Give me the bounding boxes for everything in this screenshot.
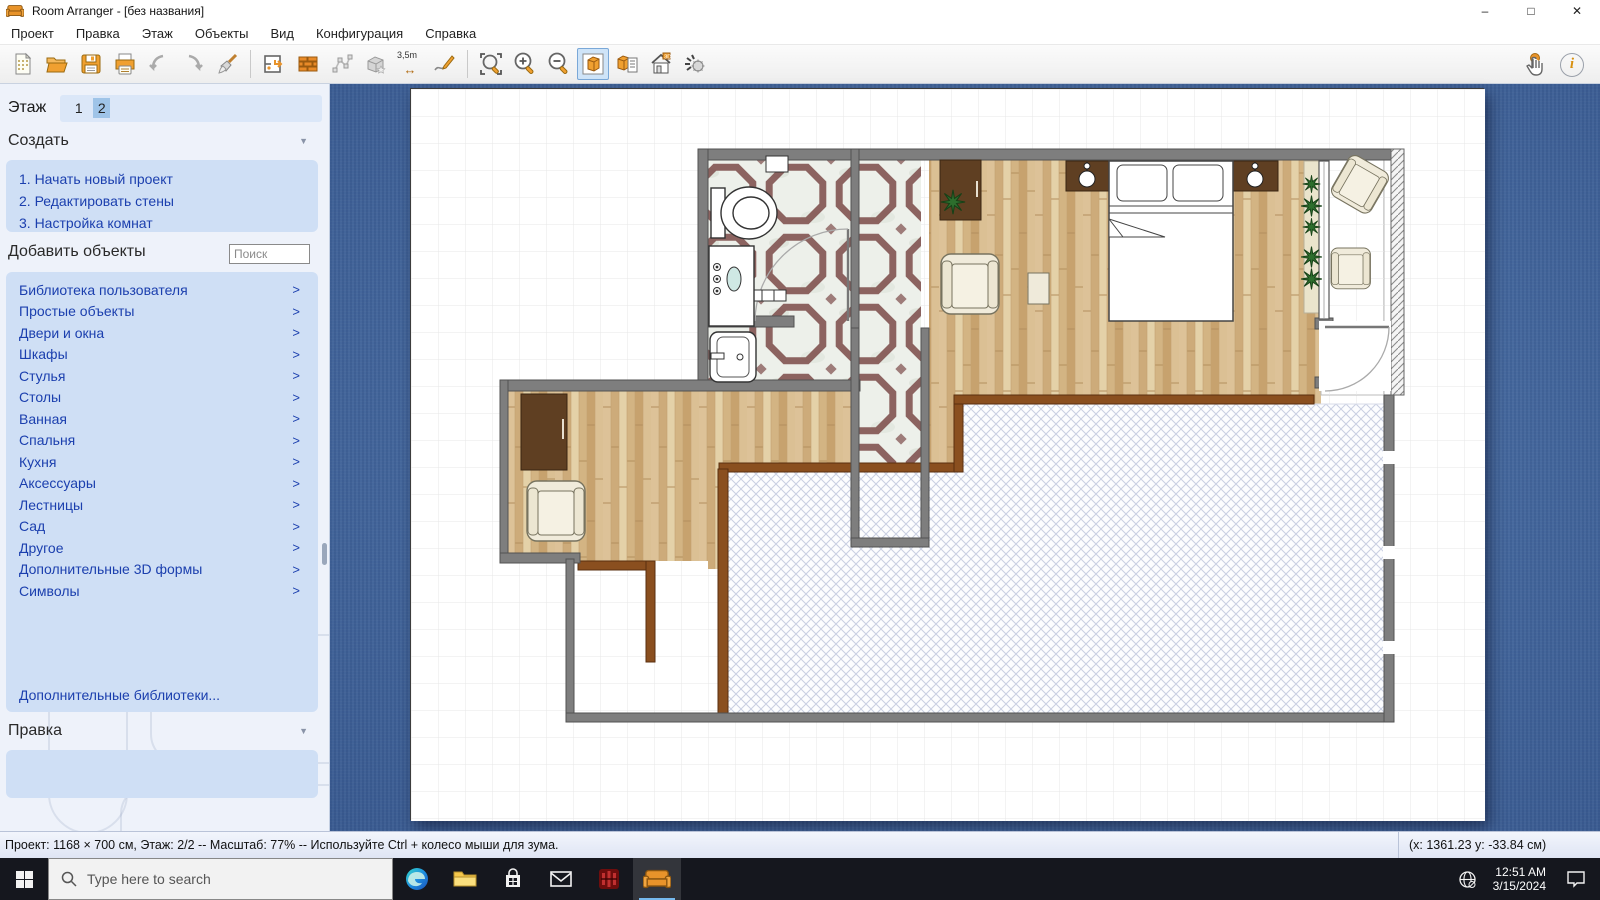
walkthrough-3d-button[interactable]: 3D [645, 48, 677, 80]
taskbar-mail[interactable] [537, 858, 585, 900]
toolbar-separator [250, 50, 251, 78]
cabinet-with-plant[interactable] [940, 160, 981, 220]
clock-date: 3/15/2024 [1493, 879, 1546, 893]
collapse-icon[interactable]: ▼ [299, 726, 308, 736]
print-button[interactable] [109, 48, 141, 80]
drawing-canvas[interactable] [330, 84, 1600, 831]
render-button[interactable] [679, 48, 711, 80]
chevron-right-icon: > [292, 390, 300, 405]
create-panel: 1. Начать новый проект 2. Редактировать … [6, 160, 318, 232]
zoom-in-button[interactable] [509, 48, 541, 80]
white-room-door[interactable] [1319, 321, 1391, 391]
start-button[interactable] [0, 858, 48, 900]
category-stairs[interactable]: Лестницы> [6, 494, 318, 516]
info-icon: i [1560, 53, 1584, 77]
category-3d-shapes[interactable]: Дополнительные 3D формы> [6, 559, 318, 581]
house-3d-icon: 3D [648, 51, 674, 77]
link-room-setup[interactable]: 3. Настройка комнат [6, 212, 318, 234]
edge-browser-icon [404, 866, 430, 892]
menu-help[interactable]: Справка [414, 22, 487, 45]
zoom-region-icon [478, 51, 504, 77]
chevron-right-icon: > [292, 411, 300, 426]
view-3d-objects-button[interactable] [611, 48, 643, 80]
sink[interactable] [710, 332, 756, 382]
redo-arrow-icon [181, 52, 205, 76]
network-globe-icon[interactable] [1458, 870, 1477, 889]
about-button[interactable]: i [1555, 48, 1589, 82]
chevron-right-icon: > [292, 433, 300, 448]
menu-project[interactable]: Проект [0, 22, 65, 45]
floor-tabs: 1 2 [60, 95, 322, 122]
group-objects-button[interactable] [360, 48, 392, 80]
chevron-right-icon: > [292, 454, 300, 469]
chevron-right-icon: > [292, 562, 300, 577]
mail-icon [548, 866, 574, 892]
category-simple-objects[interactable]: Простые объекты> [6, 301, 318, 323]
add-objects-header: Добавить объекты [0, 243, 322, 267]
cube-list-icon [615, 52, 639, 76]
cube-3d-icon [581, 52, 605, 76]
menu-objects[interactable]: Объекты [184, 22, 260, 45]
edit-header-label: Правка [8, 722, 62, 739]
create-header-label: Создать [8, 132, 69, 149]
edit-vertices-button[interactable] [326, 48, 358, 80]
wall-properties-button[interactable] [292, 48, 324, 80]
statusbar: Проект: 1168 × 700 см, Этаж: 2/2 -- Масш… [0, 831, 1600, 858]
redo-button[interactable] [177, 48, 209, 80]
measure-label: 3,5m [397, 51, 417, 60]
category-kitchen[interactable]: Кухня> [6, 451, 318, 473]
taskbar-search[interactable] [48, 858, 393, 900]
category-doors-windows[interactable]: Двери и окна> [6, 322, 318, 344]
plan-page[interactable] [410, 88, 1484, 820]
action-center-icon[interactable] [1566, 870, 1586, 888]
window-wall-hatched[interactable] [1391, 149, 1404, 395]
taskbar-edge[interactable] [393, 858, 441, 900]
menu-configuration[interactable]: Конфигурация [305, 22, 414, 45]
corridor-armchair[interactable] [527, 481, 585, 541]
format-brush-button[interactable] [211, 48, 243, 80]
menu-floor[interactable]: Этаж [131, 22, 184, 45]
printer-icon [113, 52, 137, 76]
chevron-right-icon: > [292, 519, 300, 534]
view-3d-button[interactable] [577, 48, 609, 80]
category-bedroom[interactable]: Спальня> [6, 430, 318, 452]
menubar: Проект Правка Этаж Объекты Вид Конфигура… [0, 22, 1600, 45]
object-search-input[interactable] [229, 244, 310, 264]
main-area: Этаж 1 2 Создать ▼ 1. Начать новый проек… [0, 84, 1600, 831]
window-controls: – □ ✕ [1462, 0, 1600, 22]
microsoft-store-icon [501, 867, 525, 891]
pen-icon [432, 52, 456, 76]
undo-arrow-icon [147, 52, 171, 76]
measure-arrow-icon: ↔ [395, 64, 425, 76]
titlebar: Room Arranger - [без названия] – □ ✕ [0, 0, 1600, 22]
search-icon [61, 871, 77, 887]
zoom-out-button[interactable] [543, 48, 575, 80]
menu-edit[interactable]: Правка [65, 22, 131, 45]
chevron-right-icon: > [292, 282, 300, 297]
edit-section-header: Правка ▼ [0, 722, 322, 746]
toolbar-separator [467, 50, 468, 78]
undo-button[interactable] [143, 48, 175, 80]
sidebar: Этаж 1 2 Создать ▼ 1. Начать новый проек… [0, 84, 330, 831]
new-project-button[interactable] [7, 48, 39, 80]
hand-touch-icon [1523, 52, 1549, 78]
zoom-selection-button[interactable] [475, 48, 507, 80]
draw-button[interactable] [428, 48, 460, 80]
object-categories-panel: Библиотека пользователя> Простые объекты… [6, 272, 318, 712]
category-symbols[interactable]: Символы> [6, 580, 318, 602]
category-garden[interactable]: Сад> [6, 516, 318, 538]
windows-taskbar: 12:51 AM 3/15/2024 [0, 858, 1600, 900]
save-floppy-icon [79, 52, 103, 76]
menu-view[interactable]: Вид [259, 22, 305, 45]
category-user-library[interactable]: Библиотека пользователя> [6, 279, 318, 301]
open-folder-icon [45, 52, 69, 76]
chevron-right-icon: > [292, 497, 300, 512]
taskbar-clock[interactable]: 12:51 AM 3/15/2024 [1493, 865, 1546, 893]
save-button[interactable] [75, 48, 107, 80]
taskbar-room-arranger[interactable] [633, 858, 681, 900]
floor-tab-1[interactable]: 1 [70, 98, 87, 118]
category-tables[interactable]: Столы> [6, 387, 318, 409]
status-project-info: Проект: 1168 × 700 см, Этаж: 2/2 -- Масш… [5, 838, 559, 852]
chevron-right-icon: > [292, 325, 300, 340]
chevron-right-icon: > [292, 304, 300, 319]
vertex-edit-icon [330, 52, 354, 76]
sidebar-scrollbar-thumb[interactable] [322, 543, 327, 565]
group-box-icon [364, 52, 388, 76]
zoom-out-icon [546, 51, 572, 77]
windows-logo-icon [16, 871, 33, 888]
taskbar-store[interactable] [489, 858, 537, 900]
double-bed[interactable] [1109, 161, 1233, 321]
close-button[interactable]: ✕ [1554, 0, 1600, 22]
add-objects-label: Добавить объекты [8, 243, 146, 260]
category-other[interactable]: Другое> [6, 537, 318, 559]
toolbar-right: i [1518, 45, 1590, 84]
toolbar: 3,5m ↔ 3D [0, 45, 1600, 84]
armchair-small[interactable] [1331, 248, 1370, 289]
maximize-button[interactable]: □ [1508, 0, 1554, 22]
open-project-button[interactable] [41, 48, 73, 80]
nightstand-left[interactable] [1066, 161, 1109, 191]
chevron-right-icon: > [292, 583, 300, 598]
chevron-right-icon: > [292, 476, 300, 491]
system-tray: 12:51 AM 3/15/2024 [1452, 858, 1600, 900]
floor-selector: Этаж 1 2 [0, 94, 322, 122]
chevron-right-icon: > [292, 347, 300, 362]
create-section-header: Создать ▼ [0, 132, 322, 156]
status-cursor-coordinates: (x: 1361.23 y: -33.84 см) [1398, 832, 1594, 858]
taskbar-media-app[interactable] [585, 858, 633, 900]
chevron-right-icon: > [292, 368, 300, 383]
brush-icon [215, 52, 239, 76]
zoom-in-icon [512, 51, 538, 77]
edit-panel [6, 750, 318, 798]
side-table[interactable] [1028, 273, 1049, 304]
more-libraries-link[interactable]: Дополнительные библиотеки... [19, 687, 220, 703]
floorplan-icon [262, 52, 286, 76]
floor-plan[interactable] [411, 89, 1485, 821]
window[interactable] [1319, 161, 1329, 319]
brick-wall-icon [296, 52, 320, 76]
room-arranger-sofa-icon [643, 868, 671, 890]
room-arranger-window: Room Arranger - [без названия] – □ ✕ Про… [0, 0, 1600, 900]
armchair-bedroom[interactable] [941, 254, 999, 314]
category-chairs[interactable]: Стулья> [6, 365, 318, 387]
svg-text:3D: 3D [664, 54, 671, 60]
taskbar-file-explorer[interactable] [441, 858, 489, 900]
nightstand-right[interactable] [1233, 161, 1278, 191]
taskbar-search-input[interactable] [87, 871, 357, 887]
corridor-cabinet[interactable] [521, 394, 567, 470]
clock-time: 12:51 AM [1493, 865, 1546, 879]
window-title: Room Arranger - [без названия] [32, 4, 204, 18]
media-app-icon [597, 867, 621, 891]
collapse-icon[interactable]: ▼ [299, 136, 308, 146]
measure-button[interactable]: 3,5m ↔ [394, 48, 426, 80]
flush-button[interactable] [766, 156, 788, 172]
render-burst-icon [682, 51, 708, 77]
floor-label: Этаж [8, 99, 46, 117]
minimize-button[interactable]: – [1462, 0, 1508, 22]
link-edit-walls[interactable]: 2. Редактировать стены [6, 190, 318, 212]
toilet[interactable] [711, 187, 777, 239]
walls-editor-button[interactable] [258, 48, 290, 80]
chevron-right-icon: > [292, 540, 300, 555]
link-new-project[interactable]: 1. Начать новый проект [6, 168, 318, 190]
new-document-icon [11, 52, 35, 76]
washing-machine[interactable] [709, 246, 754, 326]
pan-mode-button[interactable] [1519, 48, 1553, 82]
category-accessories[interactable]: Аксессуары> [6, 473, 318, 495]
file-explorer-icon [452, 866, 478, 892]
category-bathroom[interactable]: Ванная> [6, 408, 318, 430]
category-cabinets[interactable]: Шкафы> [6, 344, 318, 366]
floor-tab-2[interactable]: 2 [93, 98, 110, 118]
app-sofa-icon [6, 4, 24, 18]
